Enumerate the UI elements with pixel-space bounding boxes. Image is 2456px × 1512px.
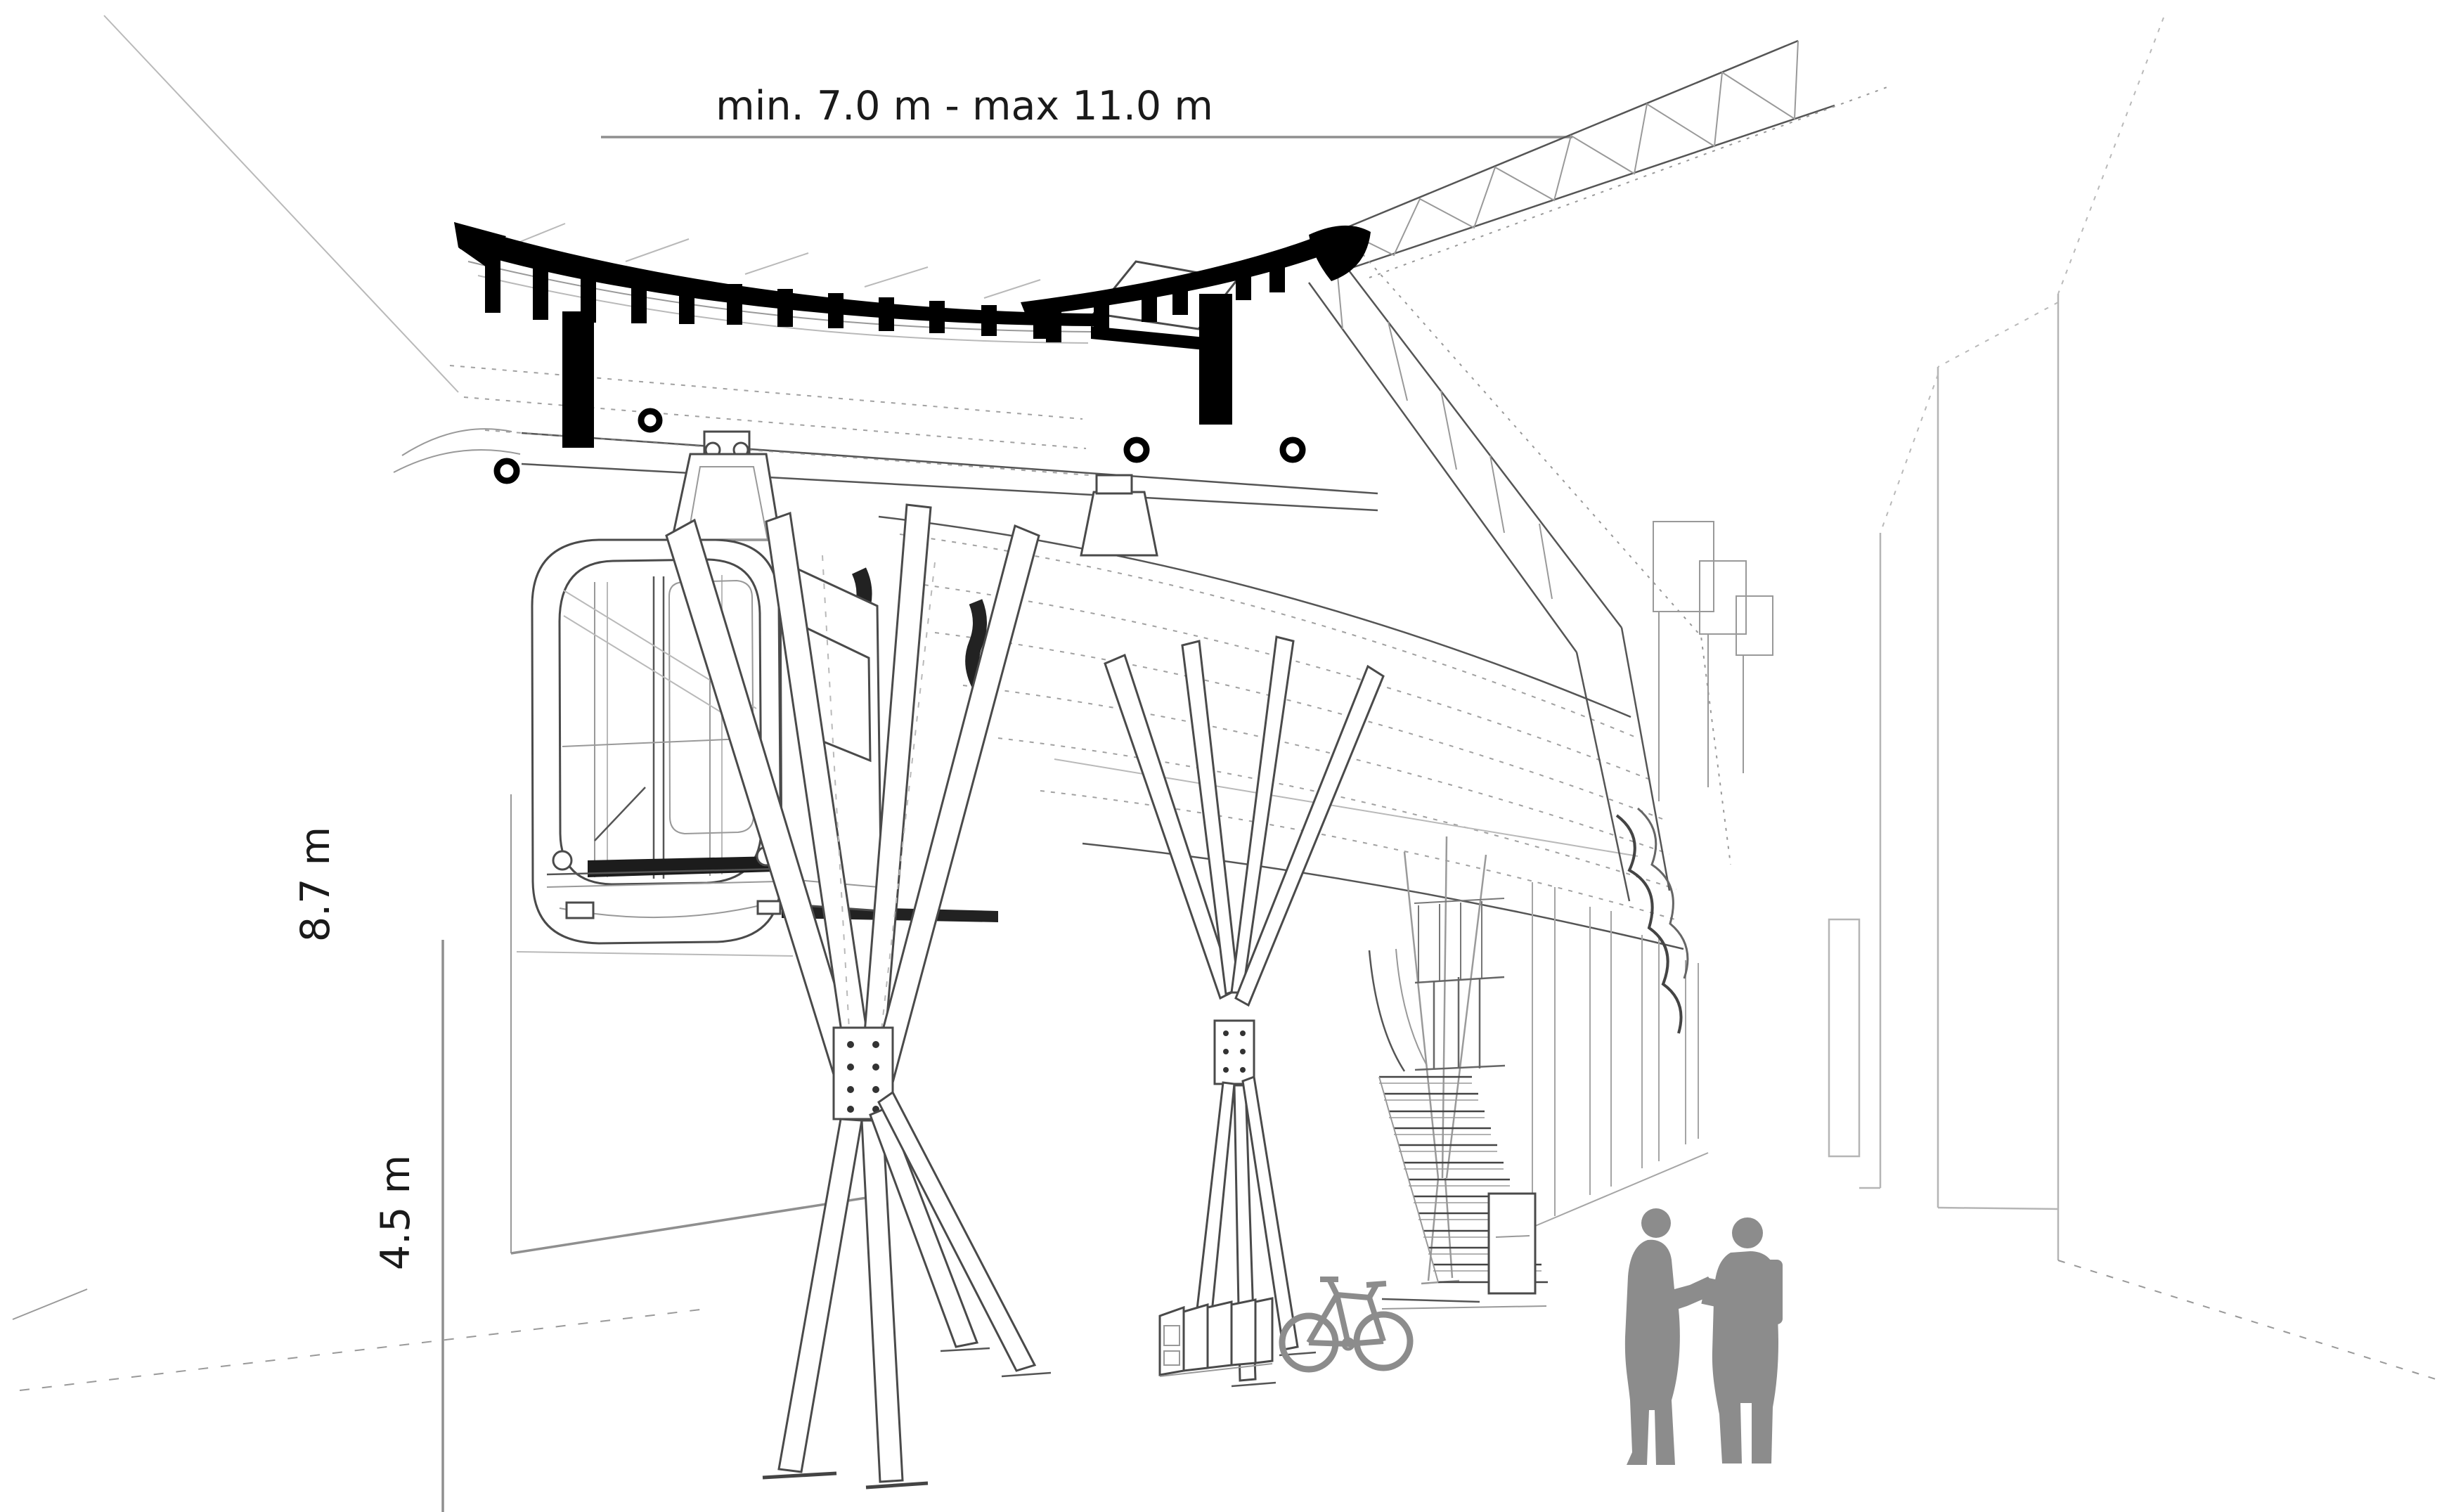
person-left-body [1625, 1240, 1718, 1465]
total-height-label: 8.7 m [292, 827, 339, 942]
foot-pad [1232, 1383, 1276, 1386]
roof-fin [929, 301, 945, 333]
stair-base-line-2 [1382, 1306, 1546, 1309]
right-signage-totem [1199, 294, 1232, 425]
tail-wavy-fascia-echo [1638, 808, 1688, 978]
roof-fin [485, 252, 500, 313]
rack-plate [1232, 1300, 1255, 1365]
person-right [1712, 1217, 1783, 1463]
roof-fin [1236, 269, 1251, 300]
foot-pad [763, 1473, 836, 1478]
left-ground-dashed-line [20, 1309, 706, 1390]
rack-plate [1255, 1298, 1272, 1363]
person-right-head [1732, 1217, 1763, 1248]
front-plate [758, 901, 780, 914]
roof-fin [727, 284, 742, 325]
landing-posts [1415, 977, 1505, 1070]
ceiling-row [450, 366, 1082, 419]
front-plate [567, 903, 593, 918]
roof-fin [879, 297, 894, 331]
rear-portal-box [1736, 596, 1773, 655]
bike-frame [1309, 1279, 1386, 1344]
rail-bottom-line [522, 464, 1378, 510]
hanging-lamps [497, 411, 1303, 481]
column-node-plate [1215, 1021, 1254, 1084]
tree-column-rear [1105, 637, 1383, 1386]
truss-lower-chord [1354, 105, 1835, 267]
left-curb-edge [13, 1289, 87, 1319]
handrail-inner [1396, 949, 1427, 1066]
right-roof-edge-2 [1938, 302, 2058, 367]
roof-fin [1269, 261, 1285, 292]
balustrade-posts [1414, 898, 1504, 983]
truss-upper-chord [1343, 41, 1798, 229]
stair-side-panel [1489, 1194, 1535, 1293]
right-roof-edge-dotted [2058, 18, 2164, 294]
stair-base-line [1382, 1299, 1480, 1302]
tail-truss-struts [1336, 253, 1552, 599]
roof-fin [777, 289, 793, 327]
people [1625, 1208, 1783, 1465]
roof-fin [679, 279, 694, 324]
lamp-ring [1283, 440, 1303, 460]
train-shadow-line [517, 952, 793, 956]
roof-fin [1094, 300, 1109, 332]
foot-pad [941, 1348, 990, 1351]
roof-fin [828, 293, 844, 328]
truss-zigzag [1344, 41, 1798, 255]
person-left [1625, 1208, 1726, 1465]
lamp-ring [641, 411, 659, 429]
width-dimension-label: min. 7.0 m - max 11.0 m [716, 83, 1213, 129]
roof-fin [1046, 310, 1061, 342]
roof-truss [1309, 41, 1891, 1033]
roof-fin [981, 305, 997, 336]
handrail [1369, 950, 1404, 1071]
left-signage-totem [562, 311, 594, 448]
colonnade-base-line [1525, 1153, 1708, 1230]
foot-pad [866, 1483, 928, 1487]
foot-pad [1002, 1373, 1051, 1376]
far-branches [1404, 836, 1486, 1178]
roof-fin [631, 274, 647, 323]
person-left-head [1641, 1208, 1671, 1238]
right-wall-pilaster [1829, 919, 1859, 1156]
lamp-ring [497, 461, 517, 481]
left-wall-edge [104, 15, 458, 392]
rack-plate [1184, 1305, 1208, 1371]
tail-truss-chord-a [1336, 253, 1622, 628]
right-wall-base [1938, 1208, 2058, 1209]
rear-portal-box [1700, 561, 1746, 634]
tail-end-edge-b [1577, 652, 1629, 901]
architectural-section-drawing: min. 7.0 m - max 11.0 m 8.7 m 4.5 m [0, 0, 2456, 1512]
roof-fin [533, 261, 548, 320]
headlight [553, 851, 571, 870]
tail-dotted-edge [1357, 247, 1731, 865]
clearance-height-label: 4.5 m [373, 1155, 419, 1270]
person-right-bag [1763, 1260, 1783, 1324]
dimensions: min. 7.0 m - max 11.0 m 8.7 m 4.5 m [292, 83, 1572, 1512]
canopy [394, 222, 1371, 481]
right-ground-dashed-line [2058, 1260, 2436, 1379]
roof-fin [1172, 283, 1188, 315]
ceiling-row [464, 397, 1086, 448]
leg [779, 1119, 862, 1472]
left-roof-fascia-band [454, 222, 1094, 326]
truss-outer-dotted-edge [1369, 86, 1891, 278]
suspension-rail [522, 433, 1378, 510]
tail-end-edge-a [1622, 628, 1669, 891]
tail-truss-chord-b [1309, 283, 1577, 652]
right-roof-tip [1309, 226, 1371, 281]
rail-top-line [522, 433, 1378, 493]
staircase [1369, 898, 1548, 1309]
right-roof-edge-3 [1880, 375, 1938, 533]
rear-portal-box [1653, 522, 1714, 612]
rack-plate [1208, 1302, 1232, 1368]
bogie-box-2 [1097, 475, 1132, 493]
hanger-arm-2 [1081, 492, 1157, 555]
roof-fin [1142, 290, 1157, 322]
lamp-ring [1127, 440, 1146, 460]
bicycle [1282, 1279, 1410, 1369]
